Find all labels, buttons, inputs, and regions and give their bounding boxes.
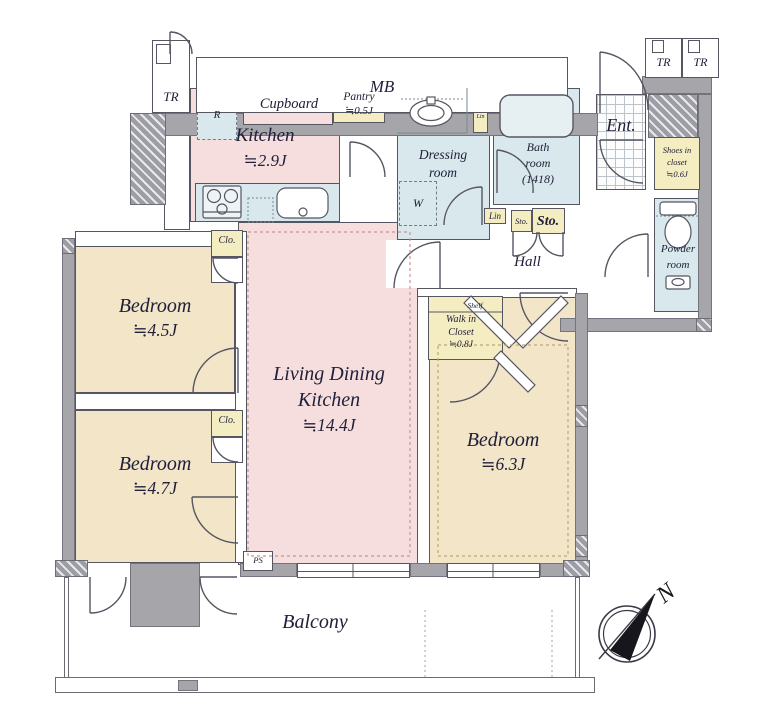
wall bbox=[75, 393, 247, 410]
bedroom-45-size: ≒4.5J bbox=[80, 320, 230, 342]
storage-large-label: Sto. bbox=[531, 211, 565, 232]
ldk-label: Kitchen bbox=[245, 388, 413, 412]
hatched-wall bbox=[575, 535, 588, 557]
bedroom-63-label: Bedroom bbox=[436, 428, 570, 452]
walk-in-closet-label: Closet bbox=[429, 327, 493, 339]
kitchen-size: ≒2.9J bbox=[200, 149, 330, 171]
shoes-closet-size: ≒0.6J bbox=[654, 168, 700, 180]
hatched-wall bbox=[696, 318, 712, 332]
bedroom-47-label: Bedroom bbox=[80, 452, 230, 476]
ldk-label: Living Dining bbox=[245, 362, 413, 386]
hatched-wall bbox=[55, 560, 88, 577]
closet-1-front bbox=[211, 257, 243, 283]
bedroom-47-size: ≒4.7J bbox=[80, 478, 230, 500]
entrance-tile bbox=[596, 94, 646, 190]
floor-plan: N MB TR TR TR Cupboard Pantry ≒0.5J R Ki… bbox=[0, 0, 768, 724]
dressing-room-label: Dressing bbox=[398, 146, 488, 164]
hatched-wall bbox=[648, 94, 698, 138]
wall bbox=[62, 238, 75, 565]
walk-in-closet-label: Walk in bbox=[429, 314, 493, 326]
dressing-room-label: room bbox=[398, 164, 488, 182]
trunk-room-label: TR bbox=[645, 50, 682, 74]
hatched-wall bbox=[130, 113, 166, 205]
closet-1-label: Clo. bbox=[211, 232, 243, 249]
shelf-label: Shelf bbox=[450, 300, 500, 311]
bedroom-63-size: ≒6.3J bbox=[436, 454, 570, 476]
linen-tall-label: Lin bbox=[472, 109, 489, 125]
balcony-label: Balcony bbox=[245, 608, 385, 636]
hall-label: Hall bbox=[480, 252, 575, 272]
powder-room-label: room bbox=[654, 258, 702, 273]
compass-north-label: N bbox=[651, 577, 682, 609]
closet-2-label: Clo. bbox=[211, 412, 243, 429]
trunk-room-label: TR bbox=[152, 84, 190, 108]
kitchen-label: Kitchen bbox=[200, 123, 330, 147]
entrance-label: Ent. bbox=[597, 112, 645, 138]
pantry-label: Pantry bbox=[333, 91, 385, 105]
balcony-pillar bbox=[130, 563, 200, 627]
kitchen-counter bbox=[195, 183, 340, 222]
cupboard-label: Cupboard bbox=[245, 92, 333, 116]
wall bbox=[698, 94, 712, 332]
balcony-rail-post bbox=[178, 680, 198, 691]
compass-needle bbox=[610, 594, 655, 661]
balcony-rail-bottom bbox=[55, 677, 595, 693]
balcony-rail-left bbox=[64, 577, 69, 678]
hatched-wall bbox=[62, 238, 75, 254]
hatched-wall bbox=[575, 405, 588, 427]
wall bbox=[575, 293, 588, 565]
window bbox=[297, 563, 410, 578]
bath-room-size: (1418) bbox=[498, 171, 578, 186]
pipe-space-label: PS bbox=[244, 553, 272, 568]
balcony-rail-right bbox=[575, 577, 580, 678]
bath-room-label: Bath bbox=[498, 139, 578, 154]
hatched-wall bbox=[563, 560, 590, 577]
powder-room-label: Powder bbox=[654, 242, 702, 257]
pantry-size: ≒0.5J bbox=[333, 105, 385, 118]
ldk-size: ≒14.4J bbox=[245, 415, 413, 437]
linen-hall-label: Lin bbox=[484, 209, 506, 223]
walk-in-closet-size: ≒0.8J bbox=[429, 340, 493, 352]
shoes-closet-label: closet bbox=[654, 156, 700, 168]
compass: N bbox=[599, 577, 682, 662]
hall-doorway bbox=[386, 240, 442, 288]
window bbox=[447, 563, 540, 578]
storage-small-label: Sto. bbox=[511, 214, 532, 228]
shoes-closet-label: Shoes in bbox=[654, 144, 700, 156]
wall bbox=[410, 563, 447, 577]
washer-label: W bbox=[400, 193, 436, 213]
wall bbox=[642, 76, 712, 94]
trunk-room-inner bbox=[156, 44, 171, 64]
trunk-room-label: TR bbox=[682, 50, 719, 74]
bath-room-label: room bbox=[498, 155, 578, 170]
bedroom-45-label: Bedroom bbox=[80, 294, 230, 318]
